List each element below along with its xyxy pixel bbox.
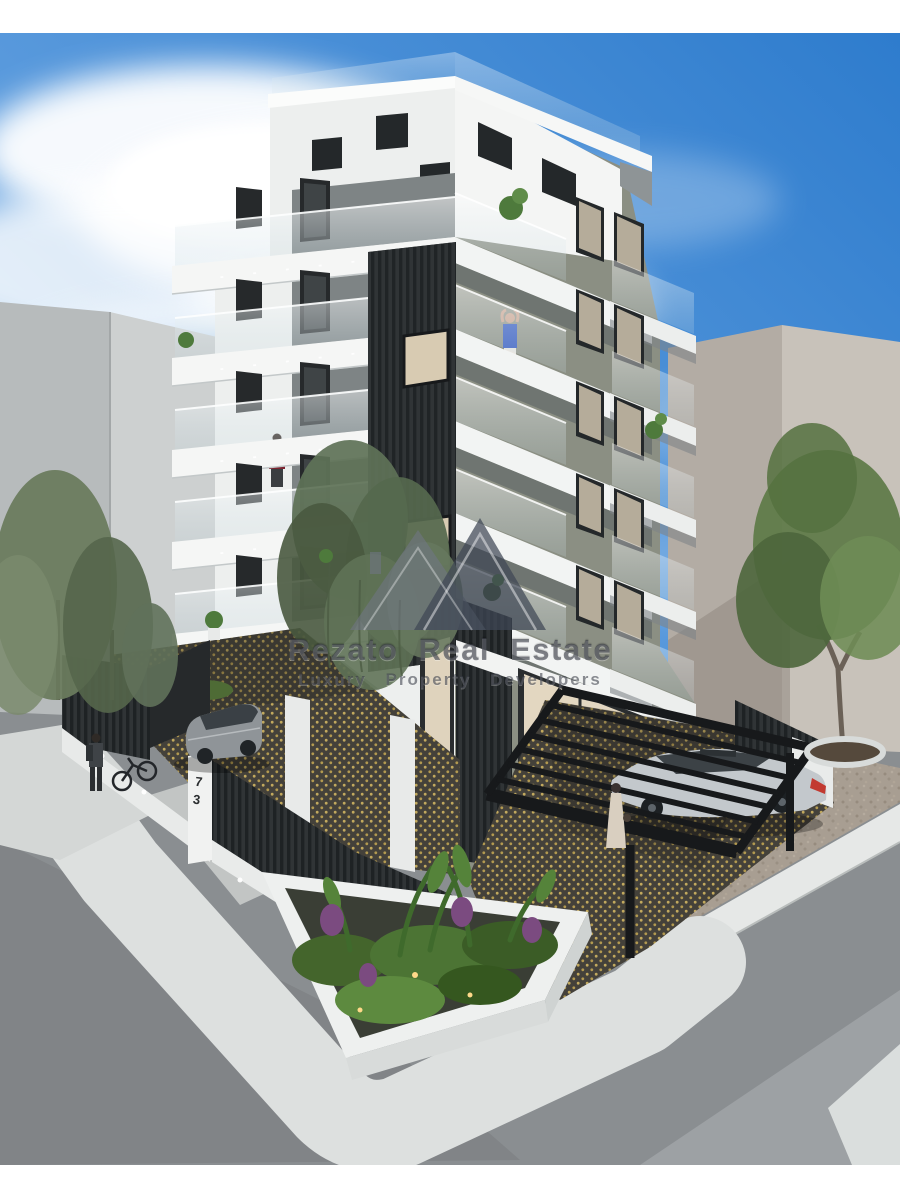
scene-rendering (0, 0, 900, 1200)
white-margin-top (0, 0, 900, 33)
tree-planter-ring (807, 739, 883, 765)
white-margin-bottom (0, 1165, 900, 1200)
architectural-render: Rezato Real Estate Luxury Property Devel… (0, 0, 900, 1200)
